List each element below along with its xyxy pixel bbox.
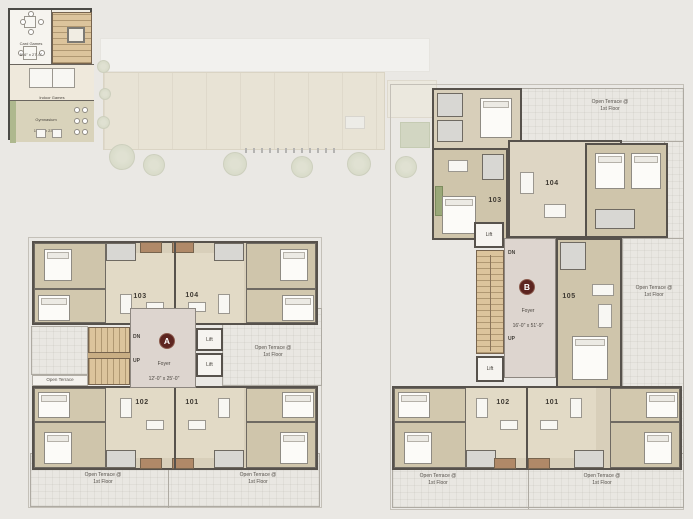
gym-equipment-icon	[74, 107, 80, 113]
unit-number-b-105: 105	[557, 293, 581, 300]
sofa-icon	[218, 398, 230, 418]
tree-icon	[143, 154, 165, 176]
bathroom	[466, 450, 496, 468]
gymnasium-label: Gymnasium 16'-9" x 23'-3"	[20, 111, 72, 133]
bathroom	[214, 243, 244, 261]
unit-divider-wall	[526, 386, 528, 470]
bed-icon	[38, 295, 70, 321]
unit-number-b-101: 101	[540, 399, 564, 406]
tree-icon	[347, 152, 371, 176]
bed-icon	[398, 392, 430, 418]
unit-number-102: 102	[130, 399, 154, 406]
balcony	[140, 242, 162, 253]
terrace-b-top: Open Terrace @ 1st Floor	[520, 88, 684, 142]
gym-equipment-icon	[74, 129, 80, 135]
block-b-badge: B	[519, 279, 535, 295]
tree-icon	[97, 60, 110, 73]
chair-icon	[20, 19, 26, 25]
lift-a-bottom: Lift	[196, 353, 223, 377]
bed-icon	[480, 98, 512, 138]
table-icon	[500, 420, 518, 430]
indoor-games-room: Indoor Games 16'-9" x 22'-3"	[10, 64, 94, 100]
tree-icon	[291, 156, 313, 178]
unit-number-b-102: 102	[491, 399, 515, 406]
clubhouse-plan: Card Games 5'-6" x 27'-0" Indoor Games 1…	[8, 8, 92, 140]
terrace-a-left	[31, 326, 88, 375]
bathroom	[214, 450, 244, 468]
lift-label: Lift	[486, 232, 493, 238]
terrace-a-left-bottom-strip: Open Terrace	[32, 375, 88, 386]
tree-icon	[99, 88, 111, 100]
card-games-title: Card Games	[20, 41, 43, 46]
sofa-icon	[476, 398, 488, 418]
terrace-label: Open Terrace @ 1st Floor	[614, 285, 693, 299]
up-label: UP	[508, 336, 515, 342]
table-icon	[146, 420, 164, 430]
stair-divider	[490, 255, 491, 351]
sofa-icon	[218, 294, 230, 314]
gym-equipment-icon	[82, 107, 88, 113]
foyer-a-label: Foyer	[158, 361, 171, 367]
unit-number-b-104: 104	[540, 180, 564, 187]
unit-number-104: 104	[180, 292, 204, 299]
balcony	[494, 458, 516, 469]
bed-icon	[404, 432, 432, 464]
foyer-b-label: Foyer	[522, 308, 535, 314]
block-b-unit-105	[556, 238, 622, 390]
block-b-top-right-bedrooms	[585, 143, 668, 238]
unit-number-b-103: 103	[483, 197, 507, 204]
terrace-label: Open Terrace @ 1st Floor	[63, 472, 143, 486]
bed-icon	[595, 153, 625, 189]
terrace-label: Open Terrace @ 1st Floor	[570, 99, 650, 113]
table-icon	[592, 284, 614, 296]
unit-number-103: 103	[128, 293, 152, 300]
bathroom	[106, 243, 136, 261]
bathroom	[437, 120, 463, 142]
lift-b-top: Lift	[474, 222, 504, 248]
floor-plan-canvas: Card Games 5'-6" x 27'-0" Indoor Games 1…	[0, 0, 693, 519]
dn-label: DN	[508, 250, 515, 256]
bathroom	[437, 93, 463, 117]
terrace-label: Open Terrace @ 1st Floor	[218, 472, 298, 486]
gym-bench	[36, 129, 46, 138]
stairs-a-lower-flight	[88, 358, 130, 385]
unit-divider-wall	[174, 386, 176, 470]
terrace-label: Open Terrace @ 1st Floor	[241, 345, 305, 359]
sofa-icon	[570, 398, 582, 418]
block-a-badge: A	[159, 333, 175, 349]
site-structure	[345, 116, 365, 129]
bed-icon	[282, 295, 314, 321]
table-icon	[448, 160, 468, 172]
bed-icon	[646, 392, 678, 418]
chair-icon	[38, 19, 44, 25]
site-road	[100, 38, 430, 72]
gym-equipment-icon	[74, 118, 80, 124]
gym-title: Gymnasium	[35, 117, 56, 122]
foyer-a-dim: 12'-0" x 25'-0"	[149, 376, 180, 382]
bed-icon	[44, 249, 72, 281]
bed-icon	[572, 336, 608, 380]
indoor-games-title: Indoor Games	[39, 95, 64, 100]
table-net-line	[52, 69, 53, 87]
bathroom	[482, 154, 504, 180]
dn-label: DN	[133, 334, 140, 340]
bed-icon	[38, 392, 70, 418]
table-icon	[188, 420, 206, 430]
bed-icon	[282, 392, 314, 418]
card-games-room: Card Games 5'-6" x 27'-0"	[10, 10, 52, 64]
bed-icon	[631, 153, 661, 189]
foyer-a-text: Foyer 12'-0" x 25'-0"	[134, 353, 194, 383]
dining-table-icon	[544, 204, 566, 218]
tree-icon	[109, 144, 135, 170]
bed-icon	[44, 432, 72, 464]
foyer-b-text: Foyer 16'-0" x 51'-9"	[498, 300, 558, 330]
site-plan-faded	[95, 32, 440, 182]
clubhouse-stairs	[52, 12, 92, 64]
balcony	[140, 458, 162, 469]
sofa-icon	[598, 304, 612, 328]
bathroom	[106, 450, 136, 468]
gym-equipment-icon	[82, 118, 88, 124]
lift-label: Lift	[487, 366, 494, 372]
terrace-label: Open Terrace @ 1st Floor	[398, 473, 478, 487]
bed-icon	[442, 196, 476, 234]
chair-icon	[28, 11, 34, 17]
terrace-label: Open Terrace	[46, 377, 73, 383]
lift-label: Lift	[206, 337, 213, 343]
stairs-a-upper-flight	[88, 327, 130, 353]
gymnasium-room: Gymnasium 16'-9" x 23'-3"	[10, 100, 94, 142]
lift-b-bottom: Lift	[476, 356, 504, 382]
tree-icon	[223, 152, 247, 176]
planter-strip	[10, 101, 16, 143]
tree-icon	[97, 116, 110, 129]
site-building-footprint	[103, 72, 385, 150]
balcony	[528, 458, 550, 469]
table-tennis-table	[29, 68, 75, 88]
bed-icon	[644, 432, 672, 464]
card-games-dim: 5'-6" x 27'-0"	[20, 52, 42, 57]
bathroom	[560, 242, 586, 270]
terrace-label: Open Terrace @ 1st Floor	[562, 473, 642, 487]
stair-landing	[67, 27, 85, 43]
unit-number-101: 101	[180, 399, 204, 406]
lift-a-top: Lift	[196, 328, 223, 351]
lift-label: Lift	[206, 362, 213, 368]
bathroom	[595, 209, 635, 229]
site-entry-marks	[245, 148, 341, 153]
bed-icon	[280, 249, 308, 281]
card-games-label: Card Games 5'-6" x 27'-0"	[11, 35, 51, 57]
table-icon	[540, 420, 558, 430]
gym-bench	[52, 129, 62, 138]
bed-icon	[280, 432, 308, 464]
gym-equipment-icon	[82, 129, 88, 135]
foyer-b-dim: 16'-0" x 51'-9"	[513, 323, 544, 329]
sofa-icon	[520, 172, 534, 194]
bathroom	[574, 450, 604, 468]
